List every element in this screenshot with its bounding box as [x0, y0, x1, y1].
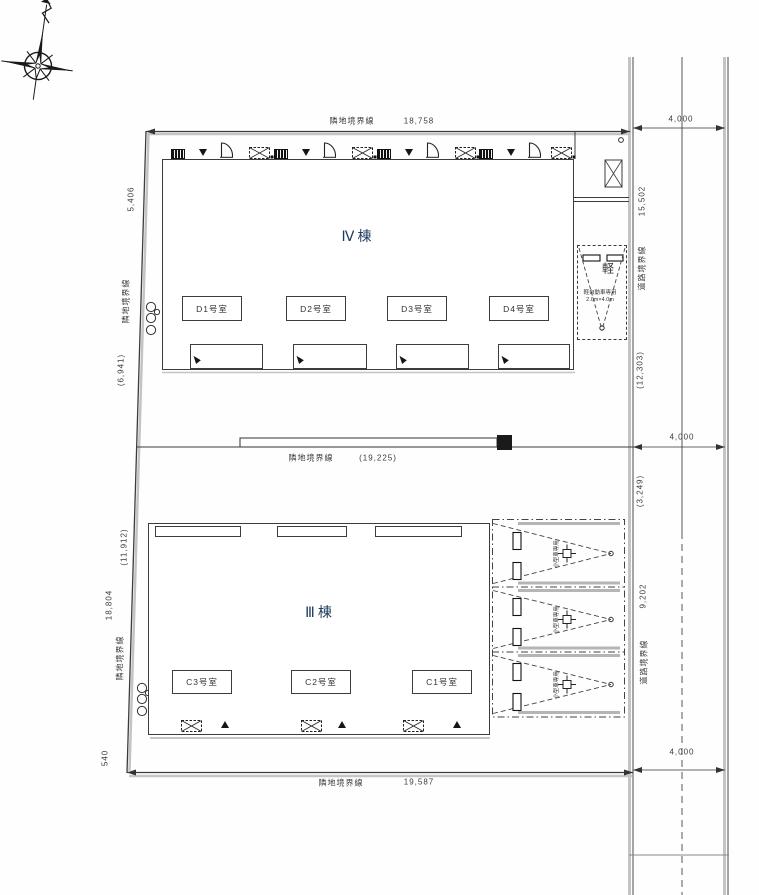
ac-outdoor-unit-icon: [551, 147, 576, 165]
site-plan-linework: [0, 0, 759, 895]
door-swing-icon: [323, 142, 336, 163]
road-width-bottom: 4,000: [669, 748, 694, 757]
ac-outdoor-unit-icon: [301, 719, 323, 737]
entrance-marker-icon: [453, 721, 461, 728]
door-swing-icon: [220, 142, 233, 163]
kei-parking-note: 軽自動車専用: [583, 288, 616, 296]
gas-meter-icon: [274, 149, 288, 159]
entrance-marker-icon: [199, 149, 207, 156]
boundary-left-label-1: 隣地境界線: [121, 279, 132, 324]
balcony: [375, 526, 462, 537]
dim-left-1: 5,406: [127, 186, 136, 211]
entrance-marker-icon: [338, 721, 346, 728]
gas-meter-icon: [479, 149, 493, 159]
dim-right-3: (3,249): [636, 475, 645, 507]
dim-left-5: 540: [101, 750, 110, 766]
entrance-porch: [498, 344, 570, 369]
room-d4-label: D4号室: [489, 296, 549, 321]
ac-outdoor-unit-icon: [181, 719, 203, 737]
balcony: [277, 526, 347, 537]
entrance-marker-icon: [405, 149, 413, 156]
door-swing-icon: [426, 142, 439, 163]
room-c3-label: C3号室: [172, 670, 232, 694]
gas-meter-icon: [377, 149, 391, 159]
road-width-top: 4,000: [668, 115, 693, 124]
building-iv-name: Ⅳ棟: [342, 226, 375, 246]
room-d2-label: D2号室: [286, 296, 346, 321]
ac-outdoor-unit-icon: [249, 147, 274, 165]
entrance-porch: [190, 344, 263, 369]
boundary-bottom-label: 隣地境界線: [319, 778, 364, 789]
dim-left-3: (11,912): [120, 528, 129, 565]
dim-right-2: (12,303): [636, 351, 645, 389]
room-c2-label: C2号室: [291, 670, 351, 694]
site-plan-canvas: Ⅳ棟 Ⅲ棟 D1号室 D2号室 D3号室 D4号室 C3号室 C2号室 C1号室…: [0, 0, 759, 895]
compass-rose-icon: [0, 0, 82, 105]
kei-parking-size: 2.0m×4.0m: [586, 297, 614, 303]
ac-outdoor-unit-icon: [352, 147, 377, 165]
dim-right-4: 9,202: [639, 583, 648, 608]
entrance-marker-icon: [302, 149, 310, 156]
entrance-marker-icon: [221, 721, 229, 728]
entrance-porch: [293, 344, 367, 369]
boundary-top-value: 18,758: [404, 117, 434, 126]
road-boundary-label-2: 道路境界線: [639, 640, 650, 685]
ac-outdoor-unit-icon: [403, 719, 425, 737]
dim-left-2: (6,941): [117, 354, 126, 386]
kei-parking-label: 軽: [602, 260, 614, 277]
road-boundary-label-1: 道路境界線: [637, 246, 648, 291]
boundary-mid-value: (19,225): [359, 454, 397, 463]
door-swing-icon: [528, 142, 541, 163]
compact-space-label: 小型車専用: [552, 540, 560, 568]
compact-space-label: 小型車専用: [552, 671, 560, 699]
fence-post-marker: [497, 435, 512, 450]
room-d3-label: D3号室: [387, 296, 447, 321]
dim-right-1: 15,502: [638, 186, 647, 216]
entrance-marker-icon: [507, 149, 515, 156]
balcony: [155, 526, 241, 537]
boundary-bottom-value: 19,587: [404, 778, 434, 787]
entrance-porch: [396, 344, 469, 369]
room-c1-label: C1号室: [412, 670, 472, 694]
boundary-top-label: 隣地境界線: [330, 116, 375, 127]
gas-meter-icon: [171, 149, 185, 159]
building-iii-outline: [148, 523, 490, 735]
dim-left-4: 18,804: [105, 590, 114, 620]
building-iv-outline: [162, 159, 574, 370]
compact-space-label: 小型車専用: [552, 606, 560, 634]
ac-outdoor-unit-icon: [455, 147, 480, 165]
building-iii-name: Ⅲ棟: [305, 602, 335, 622]
room-d1-label: D1号室: [182, 296, 242, 321]
road-width-middle: 4,000: [669, 433, 694, 442]
fence-wall: [240, 435, 512, 450]
boundary-mid-label: 隣地境界線: [289, 453, 334, 464]
boundary-left-label-2: 隣地境界線: [115, 636, 126, 681]
